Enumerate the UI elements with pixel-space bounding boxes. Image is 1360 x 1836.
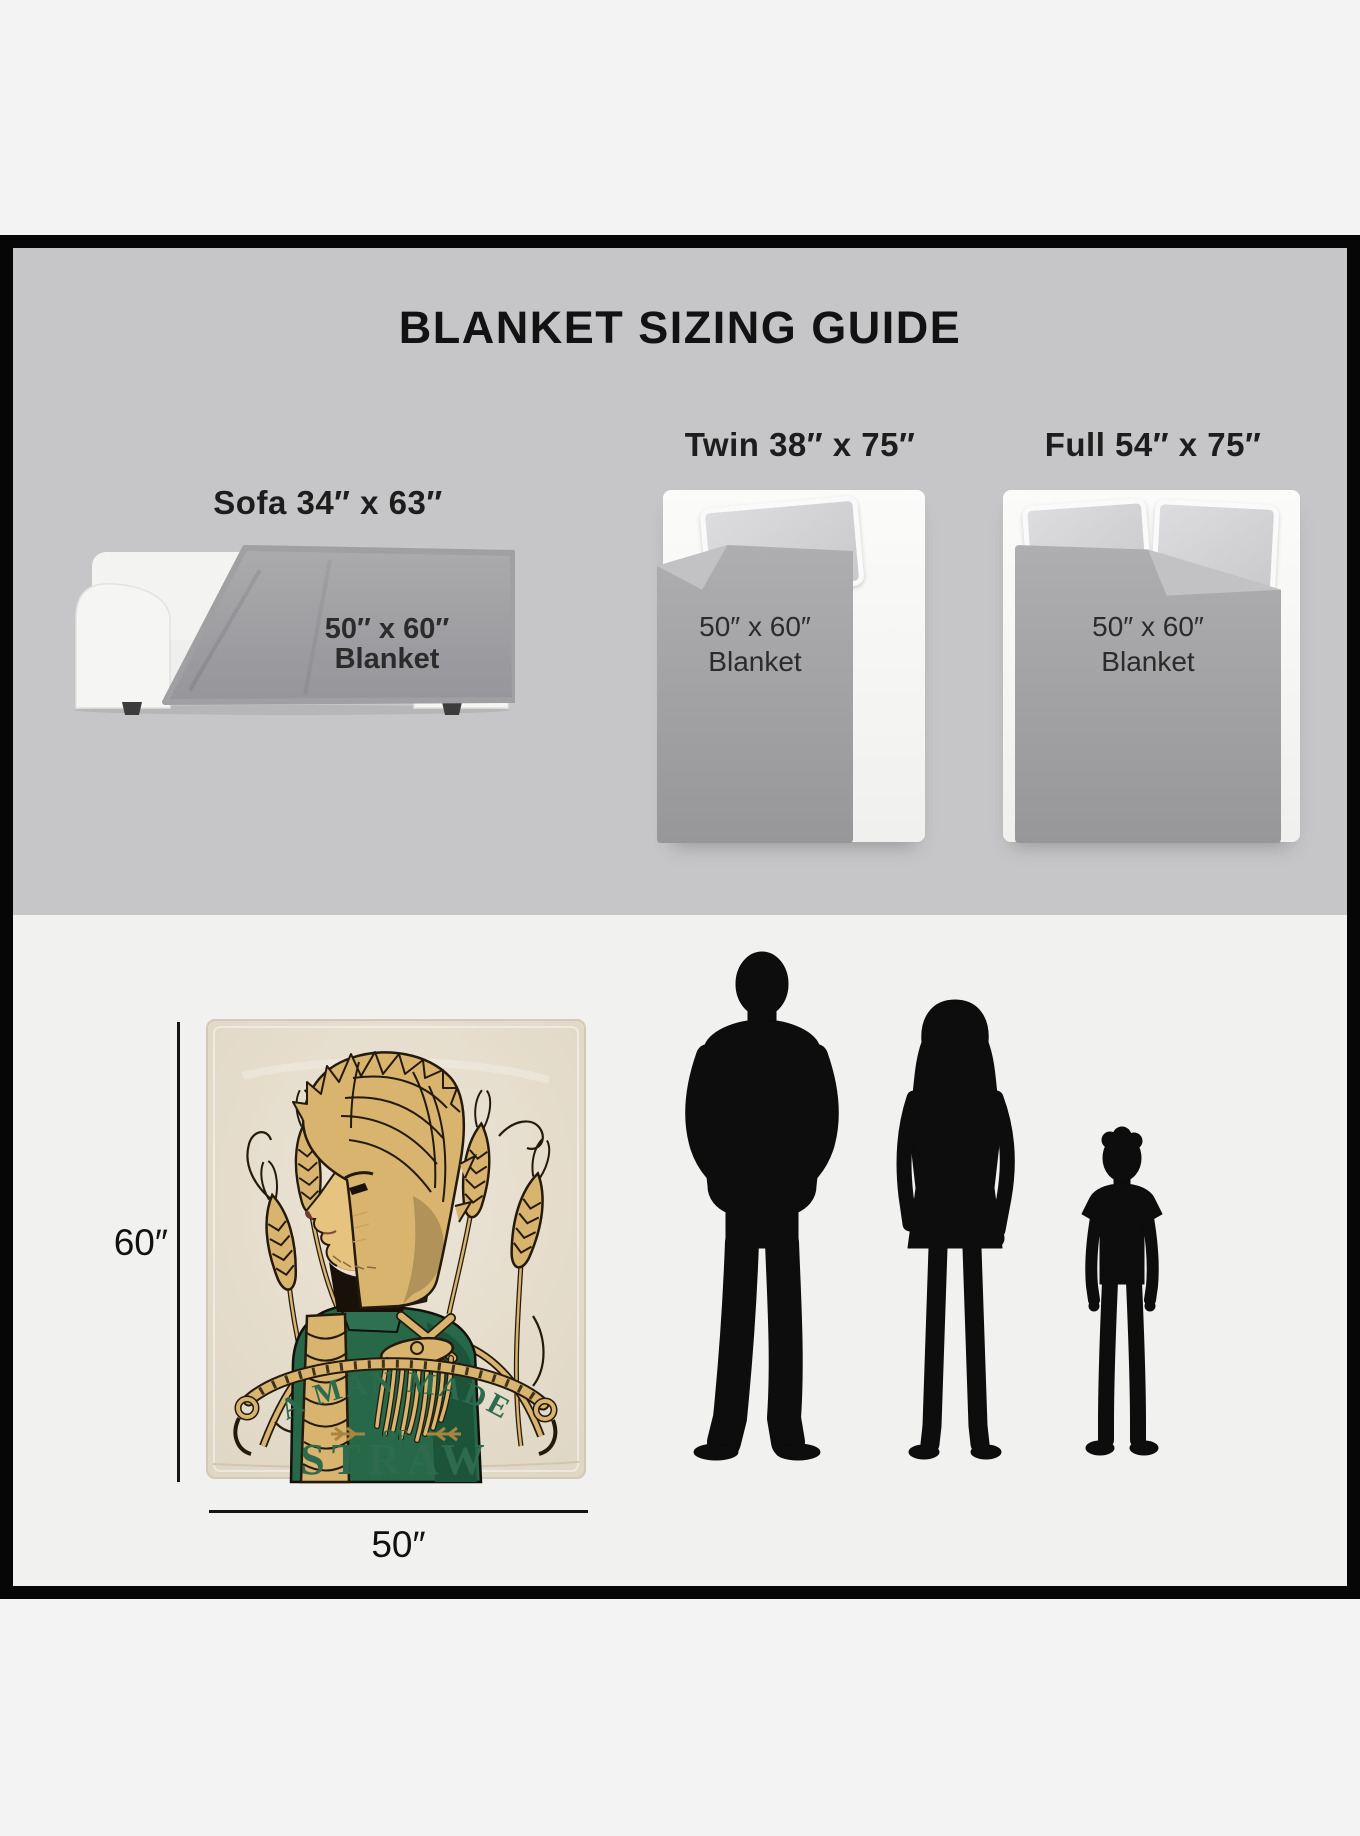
child-silhouette: [1082, 1127, 1162, 1455]
blanket-sizing-guide-image: BLANKET SIZING GUIDE Sofa 34″ x 63″ 50″ …: [0, 0, 1360, 1836]
adult-man-silhouette: [694, 952, 827, 1460]
width-measure-label: 50″: [209, 1524, 588, 1566]
sofa-size-label: Sofa 34″ x 63″: [213, 484, 442, 522]
twin-size-label: Twin 38″ x 75″: [685, 426, 916, 464]
twin-blanket-fold: [657, 545, 853, 843]
artwork-main-text: STRAW: [300, 1435, 492, 1484]
product-blanket-artwork: A MAN MADE OF STRAW: [203, 1016, 589, 1486]
twin-blanket-word: Blanket: [657, 644, 853, 679]
adult-woman-silhouette: [904, 1000, 1007, 1459]
scale-figures: [648, 946, 1213, 1471]
full-bed-illustration: 50″ x 60″ Blanket: [1003, 490, 1300, 842]
full-blanket-size-text: 50″ x 60″: [1015, 609, 1281, 644]
page-title: BLANKET SIZING GUIDE: [0, 302, 1360, 354]
height-measure-line: [177, 1022, 180, 1482]
full-size-label: Full 54″ x 75″: [1045, 426, 1262, 464]
full-blanket-fold: [1015, 545, 1281, 843]
twin-blanket-size-text: 50″ x 60″: [657, 609, 853, 644]
sofa-illustration: 50″ x 60″ Blanket: [70, 540, 515, 715]
full-blanket: 50″ x 60″ Blanket: [1015, 545, 1281, 843]
sofa-blanket-word: Blanket: [335, 643, 440, 675]
height-measure-label: 60″: [96, 1222, 168, 1264]
full-blanket-word: Blanket: [1015, 644, 1281, 679]
twin-blanket: 50″ x 60″ Blanket: [657, 545, 853, 843]
sofa-blanket-size-text: 50″ x 60″: [325, 613, 450, 645]
twin-bed-illustration: 50″ x 60″ Blanket: [663, 490, 925, 842]
width-measure-line: [209, 1510, 588, 1513]
